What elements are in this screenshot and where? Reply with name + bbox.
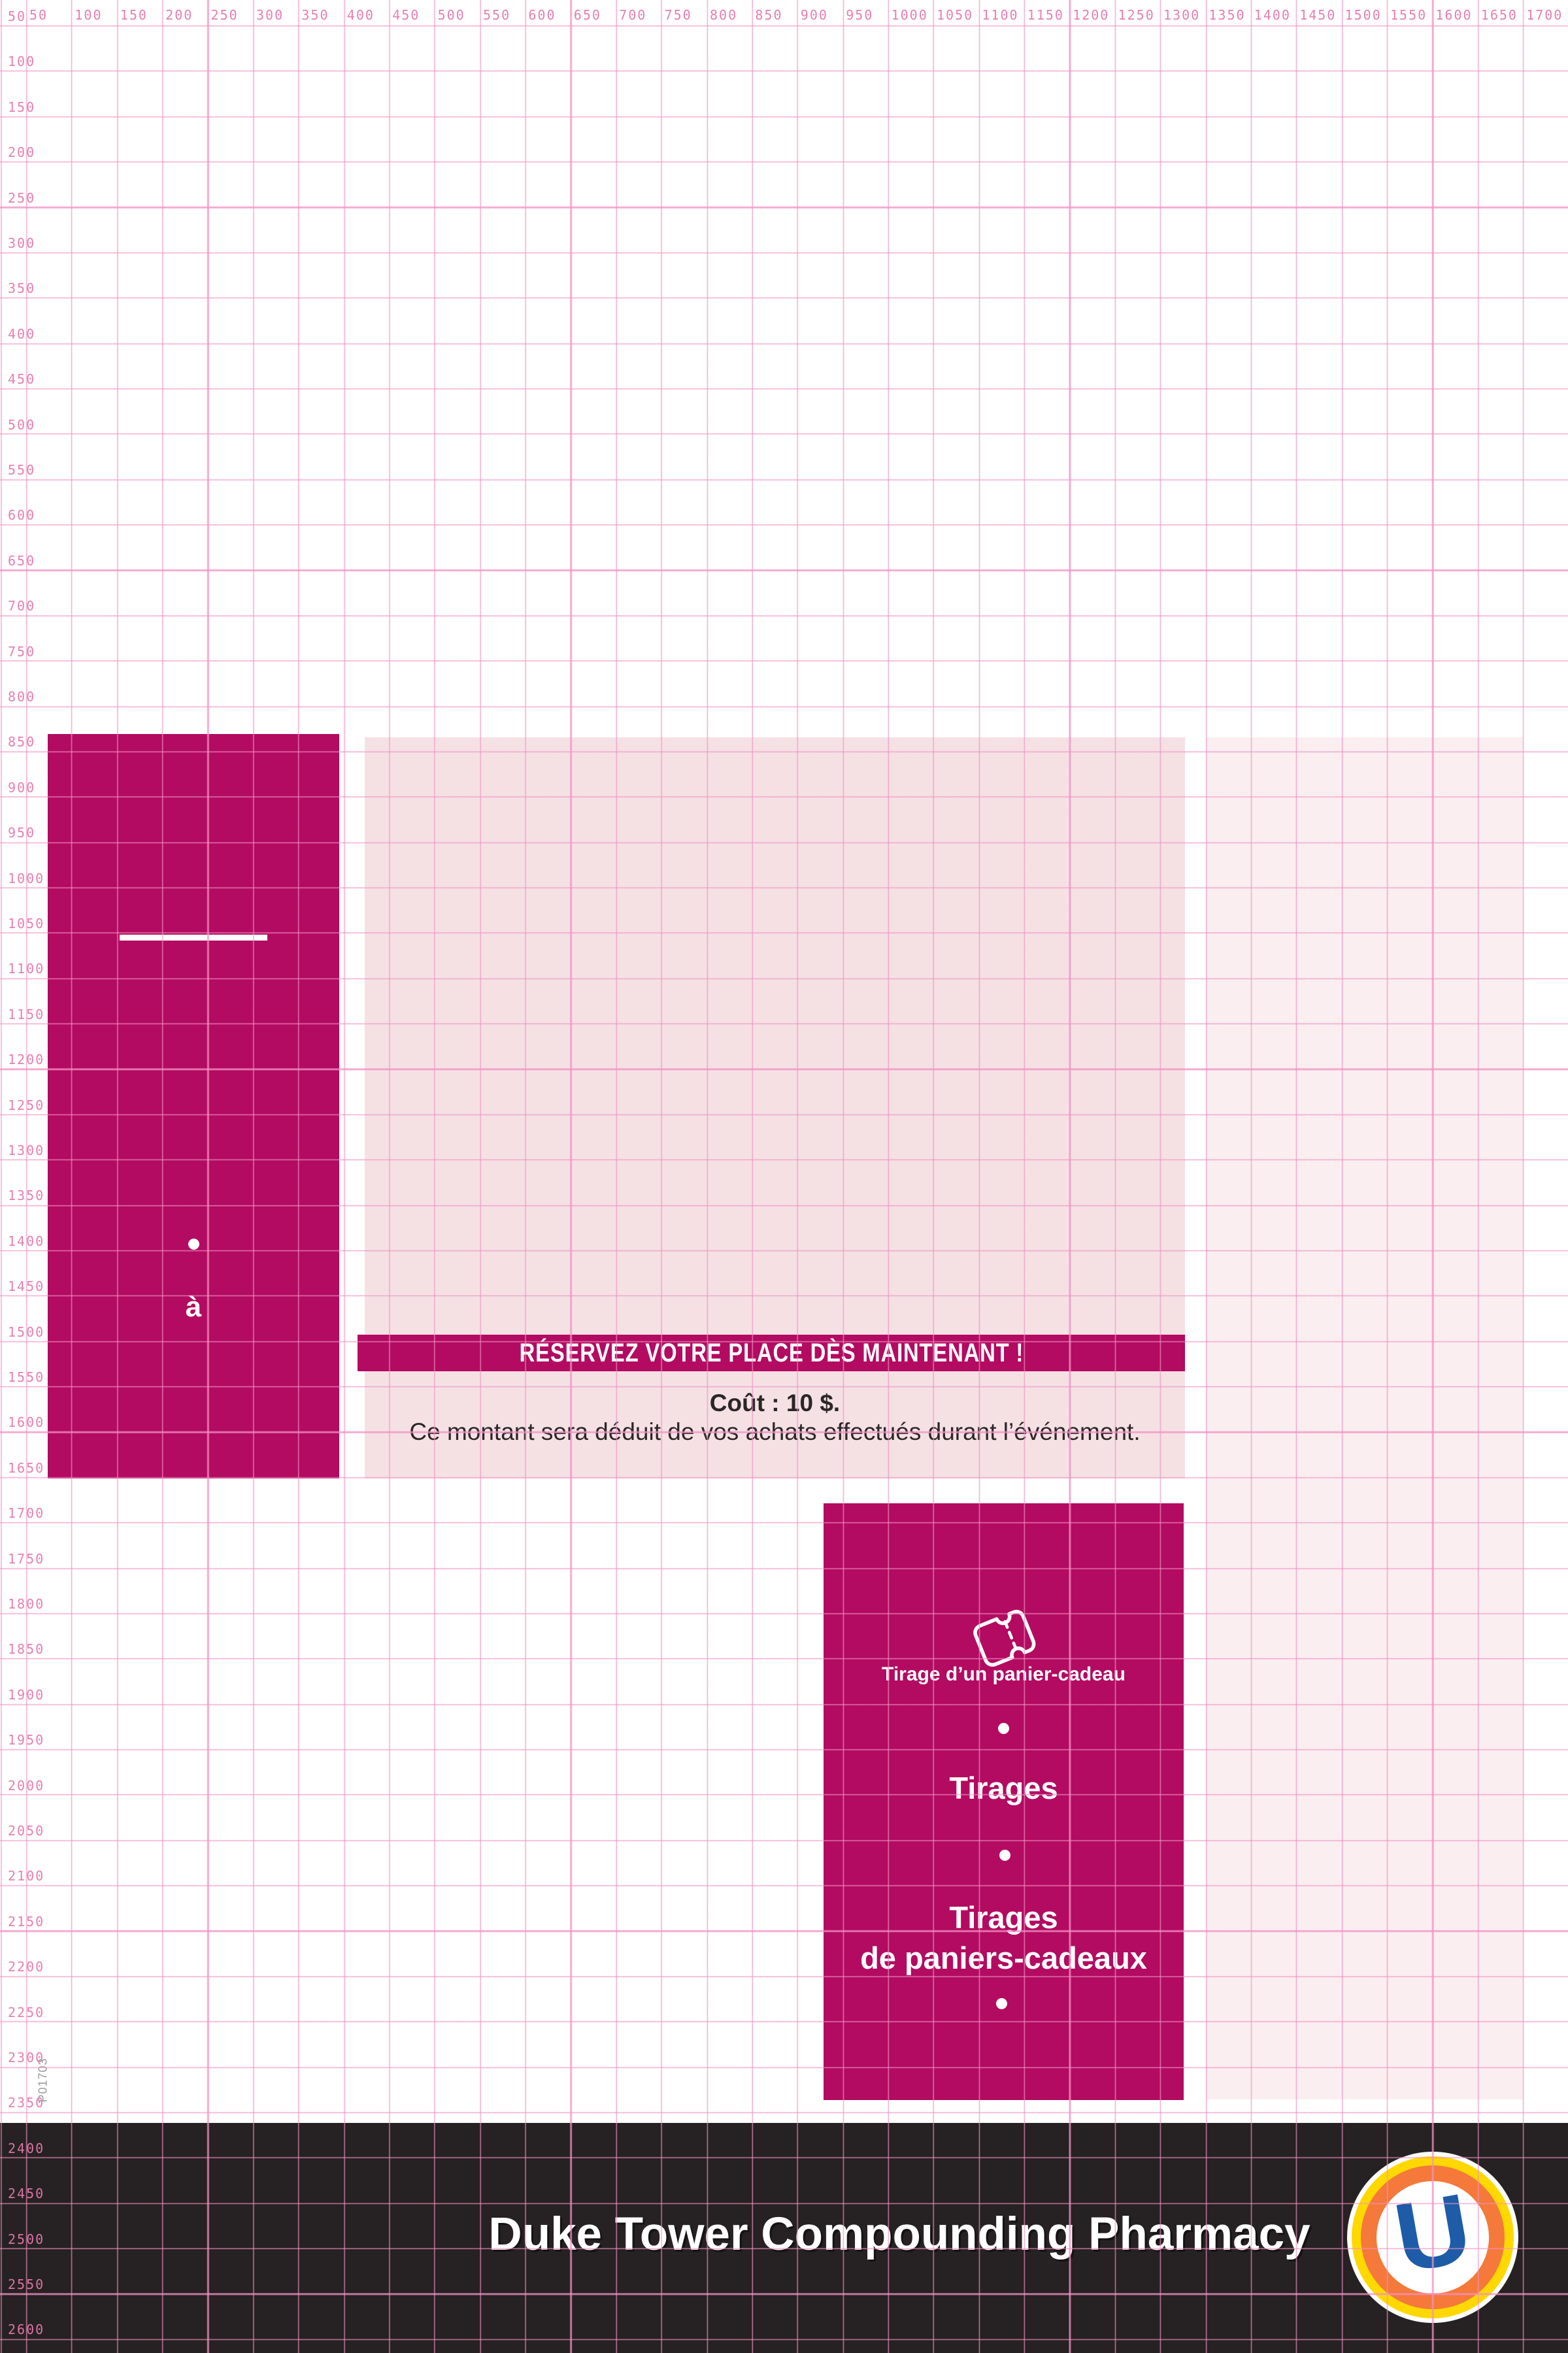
ruler-label: 500 [8, 417, 35, 433]
ruler-label: 2250 [8, 2005, 44, 2020]
ruler-label: 1200 [1073, 7, 1109, 23]
ruler-label: 2150 [8, 1914, 44, 1929]
ruler-label: 1050 [8, 916, 44, 931]
footer-bar: Duke Tower Compounding Pharmacy U [0, 2123, 1568, 2353]
cost-detail-line: Ce montant sera déduit de vos achats eff… [365, 1418, 1185, 1446]
logo-inner-disc: U [1376, 2181, 1489, 2294]
bullet-icon [999, 1850, 1010, 1861]
ruler-label: 250 [211, 7, 239, 23]
ruler-label: 750 [8, 644, 35, 659]
ruler-label: 1400 [8, 1233, 44, 1249]
ruler-label: 1650 [1481, 7, 1518, 23]
ruler-label: 450 [392, 7, 420, 23]
ruler-label: 450 [8, 371, 35, 387]
ruler-label: 1850 [8, 1641, 44, 1657]
raffle-panel: Tirage d’un panier-cadeau Tirages Tirage… [824, 1503, 1184, 2100]
ruler-label: 2000 [8, 1778, 44, 1794]
ruler-label: 2200 [8, 1959, 44, 1975]
raffle-item: Tirages [824, 1770, 1184, 1806]
ruler-label: 1600 [8, 1414, 44, 1430]
ruler-label: 300 [8, 235, 35, 251]
left-magenta-panel: à [48, 734, 339, 1478]
ruler-label: 1350 [1209, 7, 1245, 23]
ruler-label: 500 [438, 7, 465, 23]
proof-code-area: P01703 [13, 2050, 73, 2110]
ruler-label: 150 [8, 99, 35, 115]
ruler-label: 1100 [982, 7, 1018, 23]
ruler-label: 1600 [1435, 7, 1472, 23]
ruler-label: 1400 [1254, 7, 1291, 23]
ruler-label: 1250 [1118, 7, 1155, 23]
ruler-label: 900 [8, 780, 35, 795]
ruler-label: 1300 [1163, 7, 1200, 23]
ruler-label: 100 [75, 7, 102, 23]
ruler-label: 1350 [8, 1188, 44, 1203]
ruler-label: 850 [8, 734, 35, 750]
ruler-label: 550 [8, 462, 35, 478]
raffle-item-line2: de paniers-cadeaux [784, 1938, 1223, 1978]
pink-panel-light [1207, 737, 1523, 2099]
ruler-label: 150 [120, 7, 148, 23]
bullet-icon [996, 1998, 1007, 2009]
raffle-caption: Tirage d’un panier-cadeau [824, 1663, 1184, 1686]
ruler-label: 850 [755, 7, 782, 23]
reserve-banner-text: RÉSERVEZ VOTRE PLACE DÈS MAINTENANT ! [519, 1339, 1023, 1368]
ruler-label: 1500 [8, 1324, 44, 1340]
ruler-label: 650 [574, 7, 601, 23]
ruler-label: 1950 [8, 1732, 44, 1748]
ruler-label: 1150 [1027, 7, 1064, 23]
ruler-label: 1550 [8, 1369, 44, 1385]
logo-yellow-ring: U [1352, 2156, 1514, 2318]
cost-line: Coût : 10 $. [365, 1390, 1185, 1417]
ruler-label: 700 [8, 598, 35, 614]
ruler-label: 1750 [8, 1551, 44, 1567]
store-name: Duke Tower Compounding Pharmacy [455, 2208, 1344, 2261]
ruler-label: 350 [301, 7, 329, 23]
ruler-label: 2100 [8, 1868, 44, 1884]
ruler-label: 350 [8, 280, 35, 296]
ruler-label: 1250 [8, 1097, 44, 1113]
ruler-label: 1100 [8, 961, 44, 976]
ruler-label: 950 [8, 825, 35, 841]
ruler-label: 1800 [8, 1596, 44, 1612]
logo-orange-ring: U [1361, 2165, 1505, 2309]
ruler-label: 400 [8, 326, 35, 342]
ruler-label: 950 [846, 7, 873, 23]
ruler-label: 1900 [8, 1687, 44, 1703]
ruler-label: 1300 [8, 1143, 44, 1158]
ruler-label: 50 [29, 7, 48, 23]
ruler-label: 1500 [1345, 7, 1382, 23]
raffle-item-line1: Tirages [784, 1897, 1223, 1938]
ruler-label: 650 [8, 553, 35, 569]
ruler-label: 50 [8, 8, 26, 24]
ruler-label: 1550 [1390, 7, 1427, 23]
ruler-label: 250 [8, 190, 35, 206]
ruler-label: 400 [347, 7, 375, 23]
ruler-label: 200 [8, 144, 35, 160]
ruler-label: 1450 [8, 1278, 44, 1294]
ruler-label: 300 [256, 7, 284, 23]
ruler-label: 1700 [8, 1505, 44, 1521]
ruler-label: 600 [528, 7, 556, 23]
ruler-label: 1450 [1299, 7, 1336, 23]
ruler-label: 600 [8, 507, 35, 523]
pharmacy-logo: U [1347, 2152, 1518, 2323]
ruler-label: 700 [619, 7, 646, 23]
ruler-label: 100 [8, 54, 35, 69]
ruler-label: 2050 [8, 1823, 44, 1839]
bullet-icon [998, 1723, 1009, 1734]
left-panel-note: à [48, 1291, 339, 1324]
ruler-label: 200 [165, 7, 193, 23]
ruler-label: 1000 [892, 7, 928, 23]
logo-letter: U [1388, 2178, 1478, 2287]
ruler-label: 1650 [8, 1460, 44, 1476]
reserve-banner: RÉSERVEZ VOTRE PLACE DÈS MAINTENANT ! [358, 1335, 1185, 1371]
ruler-label: 1050 [937, 7, 973, 23]
ruler-label: 1150 [8, 1007, 44, 1022]
ruler-label: 900 [801, 7, 828, 23]
ruler-label: 800 [8, 689, 35, 705]
ruler-label: 550 [483, 7, 510, 23]
ruler-label: 800 [710, 7, 737, 23]
ruler-label: 750 [665, 7, 692, 23]
raffle-item: Tirages de paniers-cadeaux [784, 1897, 1223, 1978]
ruler-label: 1200 [8, 1052, 44, 1067]
ruler-label: 1000 [8, 871, 44, 886]
blank-underline [120, 935, 267, 941]
ruler-label: 1700 [1526, 7, 1563, 23]
proof-code: P01703 [37, 2058, 50, 2102]
bullet-icon [188, 1239, 199, 1250]
